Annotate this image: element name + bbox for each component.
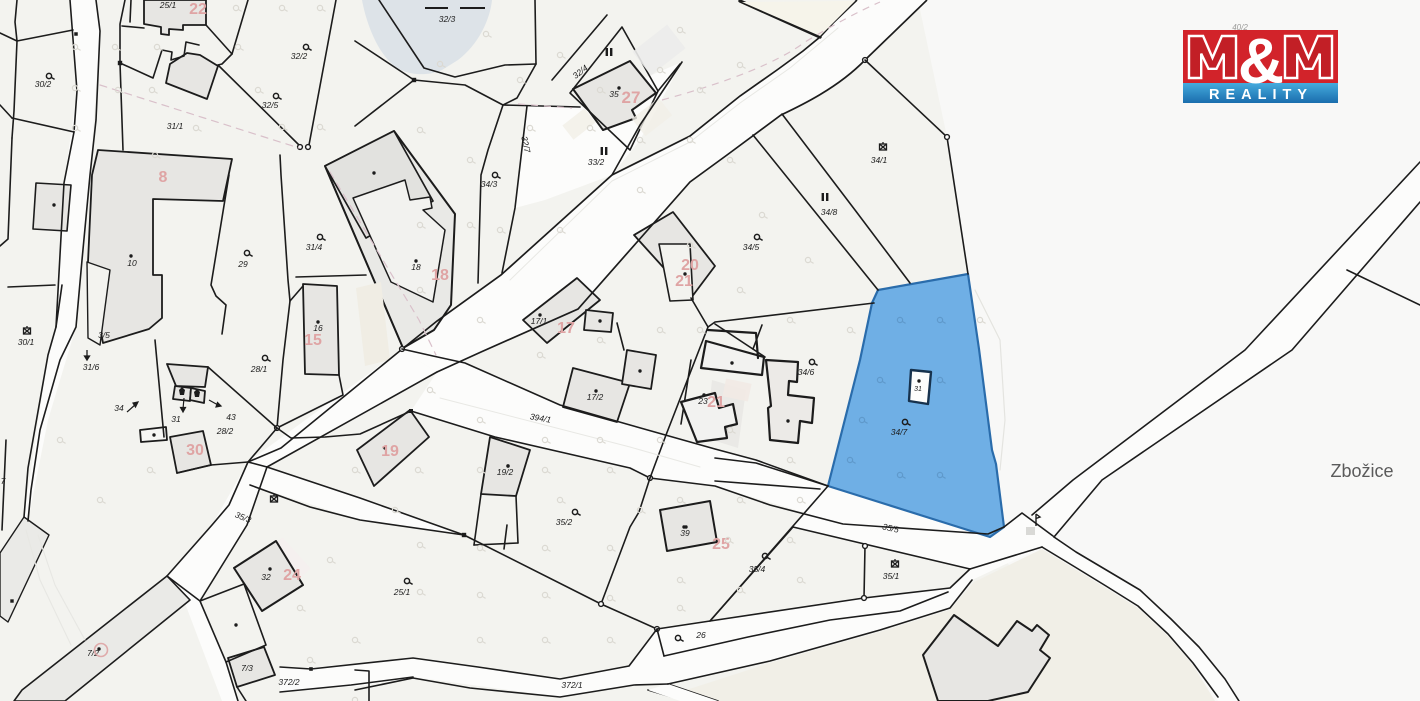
svg-text:25/1: 25/1 [159, 0, 177, 10]
svg-text:10: 10 [127, 258, 137, 268]
svg-text:30: 30 [186, 442, 204, 459]
svg-text:Zbožice: Zbožice [1330, 461, 1393, 481]
svg-text:3/5: 3/5 [98, 330, 110, 340]
svg-text:17/1: 17/1 [531, 316, 548, 326]
svg-text:35/2: 35/2 [556, 517, 573, 527]
svg-text:32/3: 32/3 [439, 14, 456, 24]
svg-text:18: 18 [431, 267, 449, 284]
svg-text:30/2: 30/2 [35, 79, 52, 89]
svg-text:7/2: 7/2 [87, 648, 99, 658]
svg-text:34/1: 34/1 [871, 155, 888, 165]
svg-text:35/4: 35/4 [749, 564, 766, 574]
svg-text:32/5: 32/5 [262, 100, 279, 110]
svg-text:REALITY: REALITY [1209, 87, 1313, 103]
svg-text:34/5: 34/5 [743, 242, 760, 252]
svg-text:31: 31 [171, 414, 181, 424]
svg-text:19: 19 [381, 443, 399, 460]
svg-text:21: 21 [675, 273, 693, 290]
svg-text:17: 17 [557, 320, 575, 337]
svg-text:21: 21 [707, 394, 725, 411]
svg-text:7/3: 7/3 [241, 663, 253, 673]
svg-text:29: 29 [237, 259, 248, 269]
svg-text:24: 24 [283, 567, 301, 584]
svg-text:372/2: 372/2 [278, 677, 300, 687]
svg-text:25: 25 [712, 536, 730, 553]
svg-text:372/1: 372/1 [561, 680, 583, 690]
svg-text:39: 39 [680, 528, 690, 538]
svg-text:30/1: 30/1 [18, 337, 35, 347]
svg-text:31/4: 31/4 [306, 242, 323, 252]
svg-text:34/7: 34/7 [891, 427, 908, 437]
svg-text:31: 31 [914, 386, 922, 393]
svg-text:22: 22 [189, 1, 207, 18]
svg-text:35: 35 [609, 89, 619, 99]
svg-text:15: 15 [304, 332, 322, 349]
svg-text:26: 26 [695, 630, 706, 640]
svg-text:31/1: 31/1 [167, 121, 184, 131]
svg-text:33/2: 33/2 [588, 157, 605, 167]
svg-text:17/2: 17/2 [587, 392, 604, 402]
svg-text:25/1: 25/1 [393, 587, 411, 597]
svg-text:34/6: 34/6 [798, 367, 815, 377]
svg-text:43: 43 [226, 412, 236, 422]
svg-text:32/2: 32/2 [291, 51, 308, 61]
svg-text:18: 18 [411, 262, 421, 272]
svg-text:23: 23 [697, 396, 708, 406]
svg-text:34/8: 34/8 [821, 207, 838, 217]
svg-text:7: 7 [1, 476, 6, 486]
svg-text:8: 8 [159, 169, 168, 186]
svg-text:32: 32 [261, 572, 271, 582]
svg-text:35/1: 35/1 [883, 571, 900, 581]
svg-text:31/6: 31/6 [83, 362, 100, 372]
svg-text:28/2: 28/2 [216, 426, 234, 436]
svg-text:19/2: 19/2 [497, 467, 514, 477]
svg-text:28/1: 28/1 [250, 364, 268, 374]
svg-text:27: 27 [622, 88, 641, 107]
svg-text:20: 20 [681, 257, 699, 274]
svg-text:34/3: 34/3 [481, 179, 498, 189]
svg-text:34: 34 [114, 403, 124, 413]
